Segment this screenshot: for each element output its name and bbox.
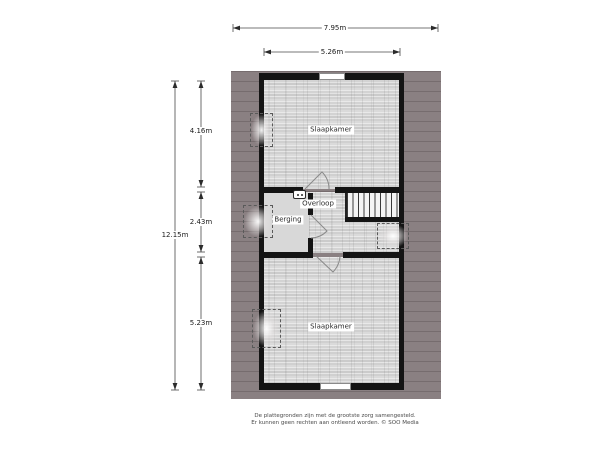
room-label-landing: Overloop: [300, 200, 336, 209]
dimension-and-door-overlay: [0, 0, 600, 450]
door-swing-icon: [305, 172, 340, 272]
room-label-bedroom-bottom: Slaapkamer: [308, 323, 354, 332]
dimension-label-segment-middle: 2.43m: [188, 218, 214, 226]
dimension-label-segment-bottom: 5.23m: [188, 319, 214, 327]
disclaimer-line-1: De plattegronden zijn met de grootste zo…: [200, 413, 470, 420]
dimension-label-total-height: 12.15m: [160, 231, 191, 239]
room-label-bedroom-top: Slaapkamer: [308, 126, 354, 135]
disclaimer-line-2: Er kunnen geen rechten aan ontleend word…: [200, 420, 470, 427]
floor-plan: Slaapkamer Berging Overloop Slaapkamer 7…: [0, 0, 600, 450]
dimension-label-inner-width: 5.26m: [319, 48, 345, 56]
disclaimer-text: De plattegronden zijn met de grootste zo…: [200, 413, 470, 427]
dimension-label-outer-width: 7.95m: [322, 24, 348, 32]
room-label-storage: Berging: [272, 216, 303, 225]
dimension-label-segment-top: 4.16m: [188, 127, 214, 135]
